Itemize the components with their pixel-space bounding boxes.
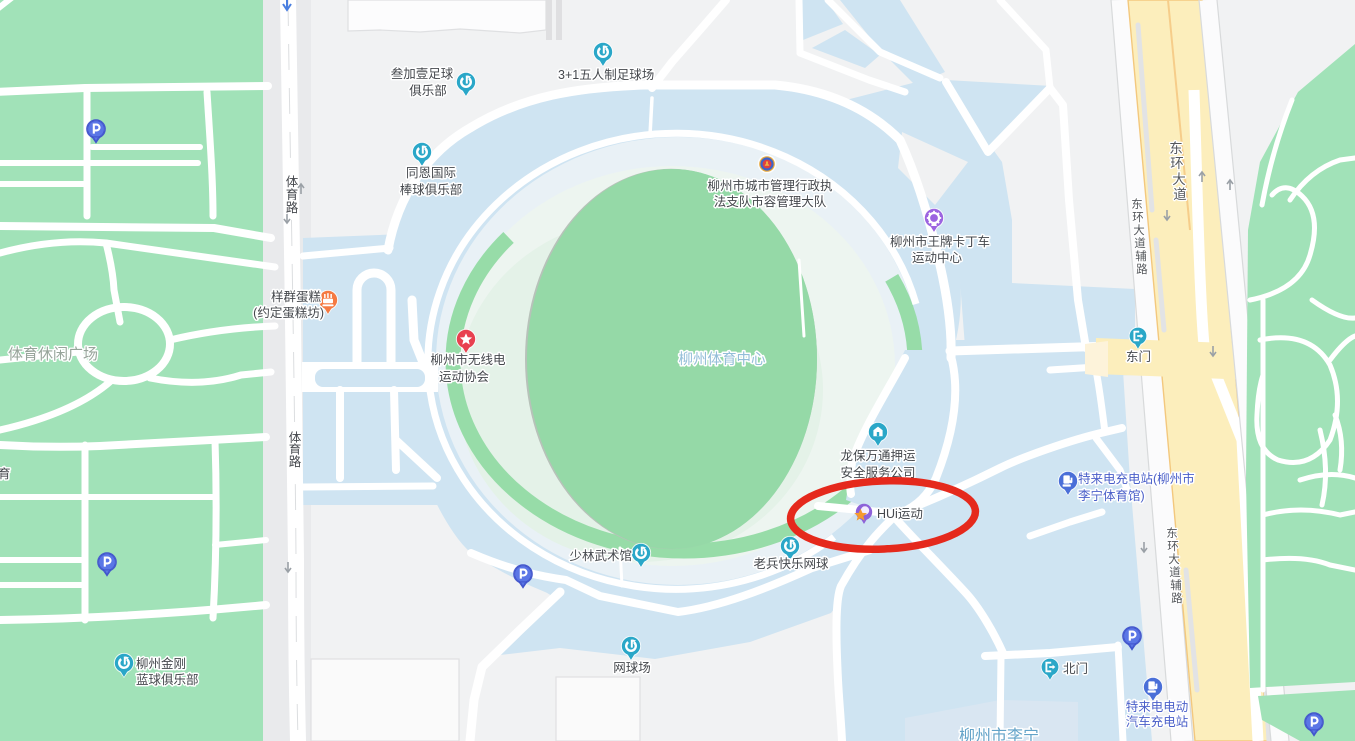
svg-text:辅: 辅 <box>1170 578 1182 592</box>
svg-text:道: 道 <box>1134 236 1146 250</box>
svg-text:俱乐部: 俱乐部 <box>409 83 447 98</box>
svg-text:运动协会: 运动协会 <box>439 369 490 384</box>
svg-text:特来电电动: 特来电电动 <box>1126 699 1189 714</box>
svg-text:东: 东 <box>1169 141 1183 156</box>
svg-text:路: 路 <box>1171 591 1183 605</box>
svg-text:少林武术馆: 少林武术馆 <box>569 548 632 563</box>
svg-text:辅: 辅 <box>1135 249 1147 263</box>
svg-text:大: 大 <box>1168 552 1180 566</box>
svg-text:东: 东 <box>1166 527 1178 540</box>
svg-text:路: 路 <box>1136 262 1148 276</box>
svg-text:李宁体育馆): 李宁体育馆) <box>1078 488 1145 503</box>
svg-text:体: 体 <box>286 175 299 189</box>
svg-text:柳州市无线电: 柳州市无线电 <box>430 352 506 367</box>
svg-text:大: 大 <box>1172 172 1186 187</box>
svg-text:东: 东 <box>1131 198 1143 211</box>
svg-text:网球场: 网球场 <box>613 661 651 675</box>
svg-text:龙保万通押运: 龙保万通押运 <box>840 449 916 463</box>
svg-text:环: 环 <box>1167 541 1179 553</box>
svg-text:叁加壹足球: 叁加壹足球 <box>391 66 454 81</box>
svg-text:HUi运动: HUi运动 <box>877 507 923 521</box>
svg-text:大: 大 <box>1133 223 1145 237</box>
svg-text:路: 路 <box>286 200 299 215</box>
svg-text:汽车充电站: 汽车充电站 <box>1126 714 1189 729</box>
svg-text:柳州金刚: 柳州金刚 <box>136 656 186 671</box>
svg-text:老兵快乐网球: 老兵快乐网球 <box>753 557 829 571</box>
svg-text:蓝球俱乐部: 蓝球俱乐部 <box>136 672 199 687</box>
svg-text:柳州体育中心: 柳州体育中心 <box>679 351 766 368</box>
svg-text:3+1五人制足球场: 3+1五人制足球场 <box>558 68 654 82</box>
svg-text:体育休闲广场: 体育休闲广场 <box>8 346 98 363</box>
svg-text:育: 育 <box>286 187 299 202</box>
svg-text:柳州市城市管理行政执: 柳州市城市管理行政执 <box>707 178 833 193</box>
svg-text:法支队市容管理大队: 法支队市容管理大队 <box>714 194 827 209</box>
svg-text:特来电充电站(柳州市: 特来电充电站(柳州市 <box>1078 471 1195 486</box>
svg-text:柳州市王牌卡丁车: 柳州市王牌卡丁车 <box>890 234 990 249</box>
svg-text:东门: 东门 <box>1126 349 1151 364</box>
svg-text:路: 路 <box>289 454 302 469</box>
svg-text:同恩国际: 同恩国际 <box>406 166 456 180</box>
svg-text:环: 环 <box>1170 156 1184 171</box>
svg-text:道: 道 <box>1169 565 1181 579</box>
svg-text:棒球俱乐部: 棒球俱乐部 <box>400 182 463 197</box>
svg-text:运动中心: 运动中心 <box>912 250 963 265</box>
svg-text:育: 育 <box>0 466 11 481</box>
svg-text:样群蛋糕: 样群蛋糕 <box>271 289 322 304</box>
svg-text:柳州市李宁: 柳州市李宁 <box>959 727 1039 741</box>
svg-text:环: 环 <box>1132 212 1144 224</box>
svg-text:(约定蛋糕坊): (约定蛋糕坊) <box>253 305 324 320</box>
svg-text:道: 道 <box>1173 187 1187 202</box>
svg-text:北门: 北门 <box>1063 661 1088 676</box>
